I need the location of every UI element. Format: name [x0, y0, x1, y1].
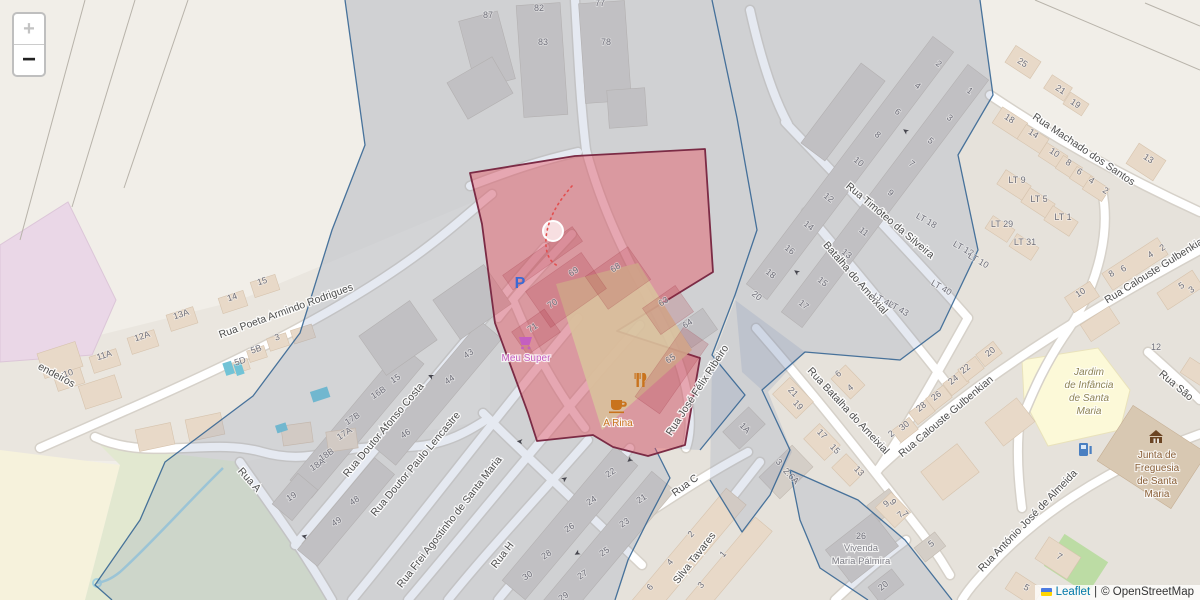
attribution-bar: Leaflet | © OpenStreetMap	[1035, 585, 1200, 600]
house-number: 83	[538, 37, 548, 47]
poi-label-jardim-infancia: Maria	[1076, 406, 1101, 417]
leaflet-link[interactable]: Leaflet	[1056, 586, 1091, 598]
house-number: 12	[1151, 342, 1161, 352]
poi-label-vivenda: Maria Pálmira	[832, 556, 891, 567]
house-number: LT 31	[1014, 237, 1036, 247]
poi-label-junta-freguesia: Maria	[1144, 489, 1169, 500]
zoom-out-button[interactable]: −	[14, 44, 44, 75]
zoom-control: + −	[12, 12, 46, 77]
poi-label-jardim-infancia: Jardim	[1073, 367, 1104, 378]
house-number: LT 9	[1008, 175, 1025, 185]
map-canvas: endeirosRua Poeta Armindo RodriguesRua A…	[0, 0, 1200, 600]
house-number: 82	[534, 3, 544, 13]
zoom-in-button[interactable]: +	[14, 14, 44, 44]
house-number: LT 5	[1030, 194, 1047, 204]
glyph-icons-layer: P	[515, 275, 526, 292]
roundabout	[543, 221, 563, 241]
poi-label-a-rina: A Rina	[603, 418, 633, 429]
poi-label-vivenda: Vivenda	[844, 543, 879, 554]
openstreetmap-link[interactable]: © OpenStreetMap	[1101, 586, 1194, 598]
house-number: 77	[595, 0, 605, 8]
poi-label-jardim-infancia: de Santa	[1069, 393, 1109, 404]
house-number: LT 29	[991, 219, 1013, 229]
poi-label-junta-freguesia: Freguesia	[1135, 463, 1180, 474]
one-way-arrow-icon: ➤	[516, 437, 524, 447]
poi-label-junta-freguesia: Junta de	[1138, 450, 1177, 461]
poi-label-jardim-infancia: de Infância	[1065, 380, 1114, 391]
house-number: 87	[483, 10, 493, 20]
house-number: LT 1	[1054, 212, 1071, 222]
house-number: 78	[601, 37, 611, 47]
house-number: 26	[856, 531, 866, 541]
poi-label-meu-super: Meu Super	[502, 353, 552, 364]
poi-label-junta-freguesia: de Santa	[1137, 476, 1177, 487]
attribution-separator: |	[1094, 586, 1097, 598]
ukraine-flag-icon	[1041, 588, 1052, 596]
parking-icon: P	[515, 275, 526, 292]
leaflet-map[interactable]: endeirosRua Poeta Armindo RodriguesRua A…	[0, 0, 1200, 600]
